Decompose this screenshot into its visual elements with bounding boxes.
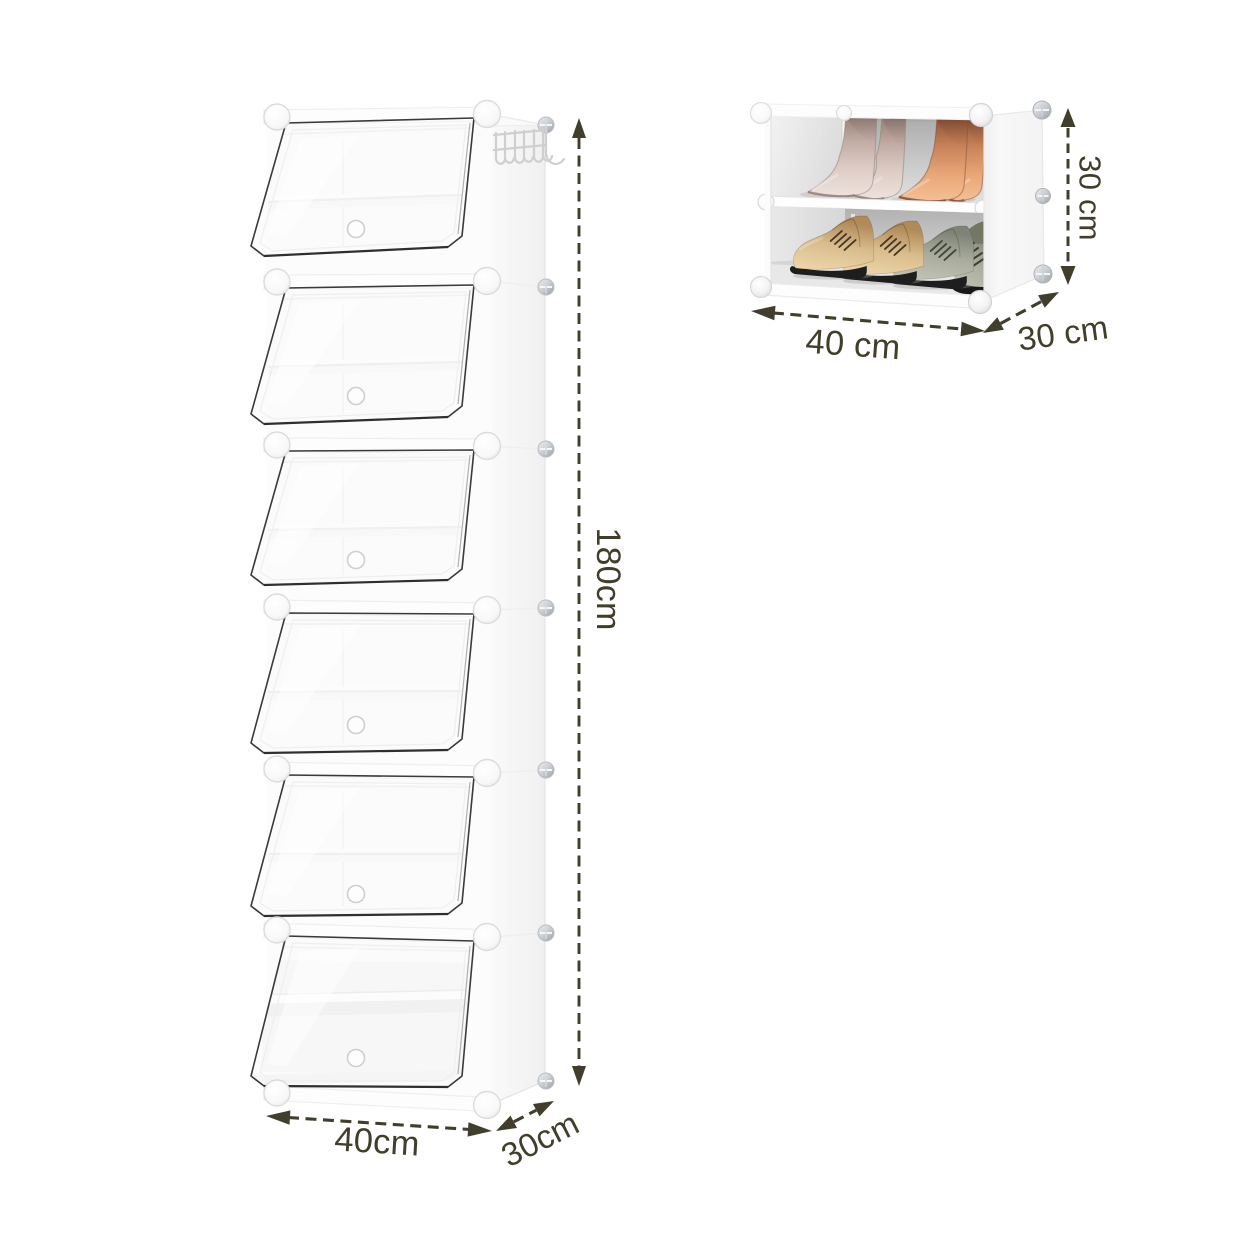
svg-text:40cm: 40cm [333, 1120, 420, 1163]
svg-text:180cm: 180cm [589, 527, 627, 630]
svg-text:40 cm: 40 cm [804, 323, 901, 368]
svg-text:30 cm: 30 cm [1073, 155, 1108, 240]
